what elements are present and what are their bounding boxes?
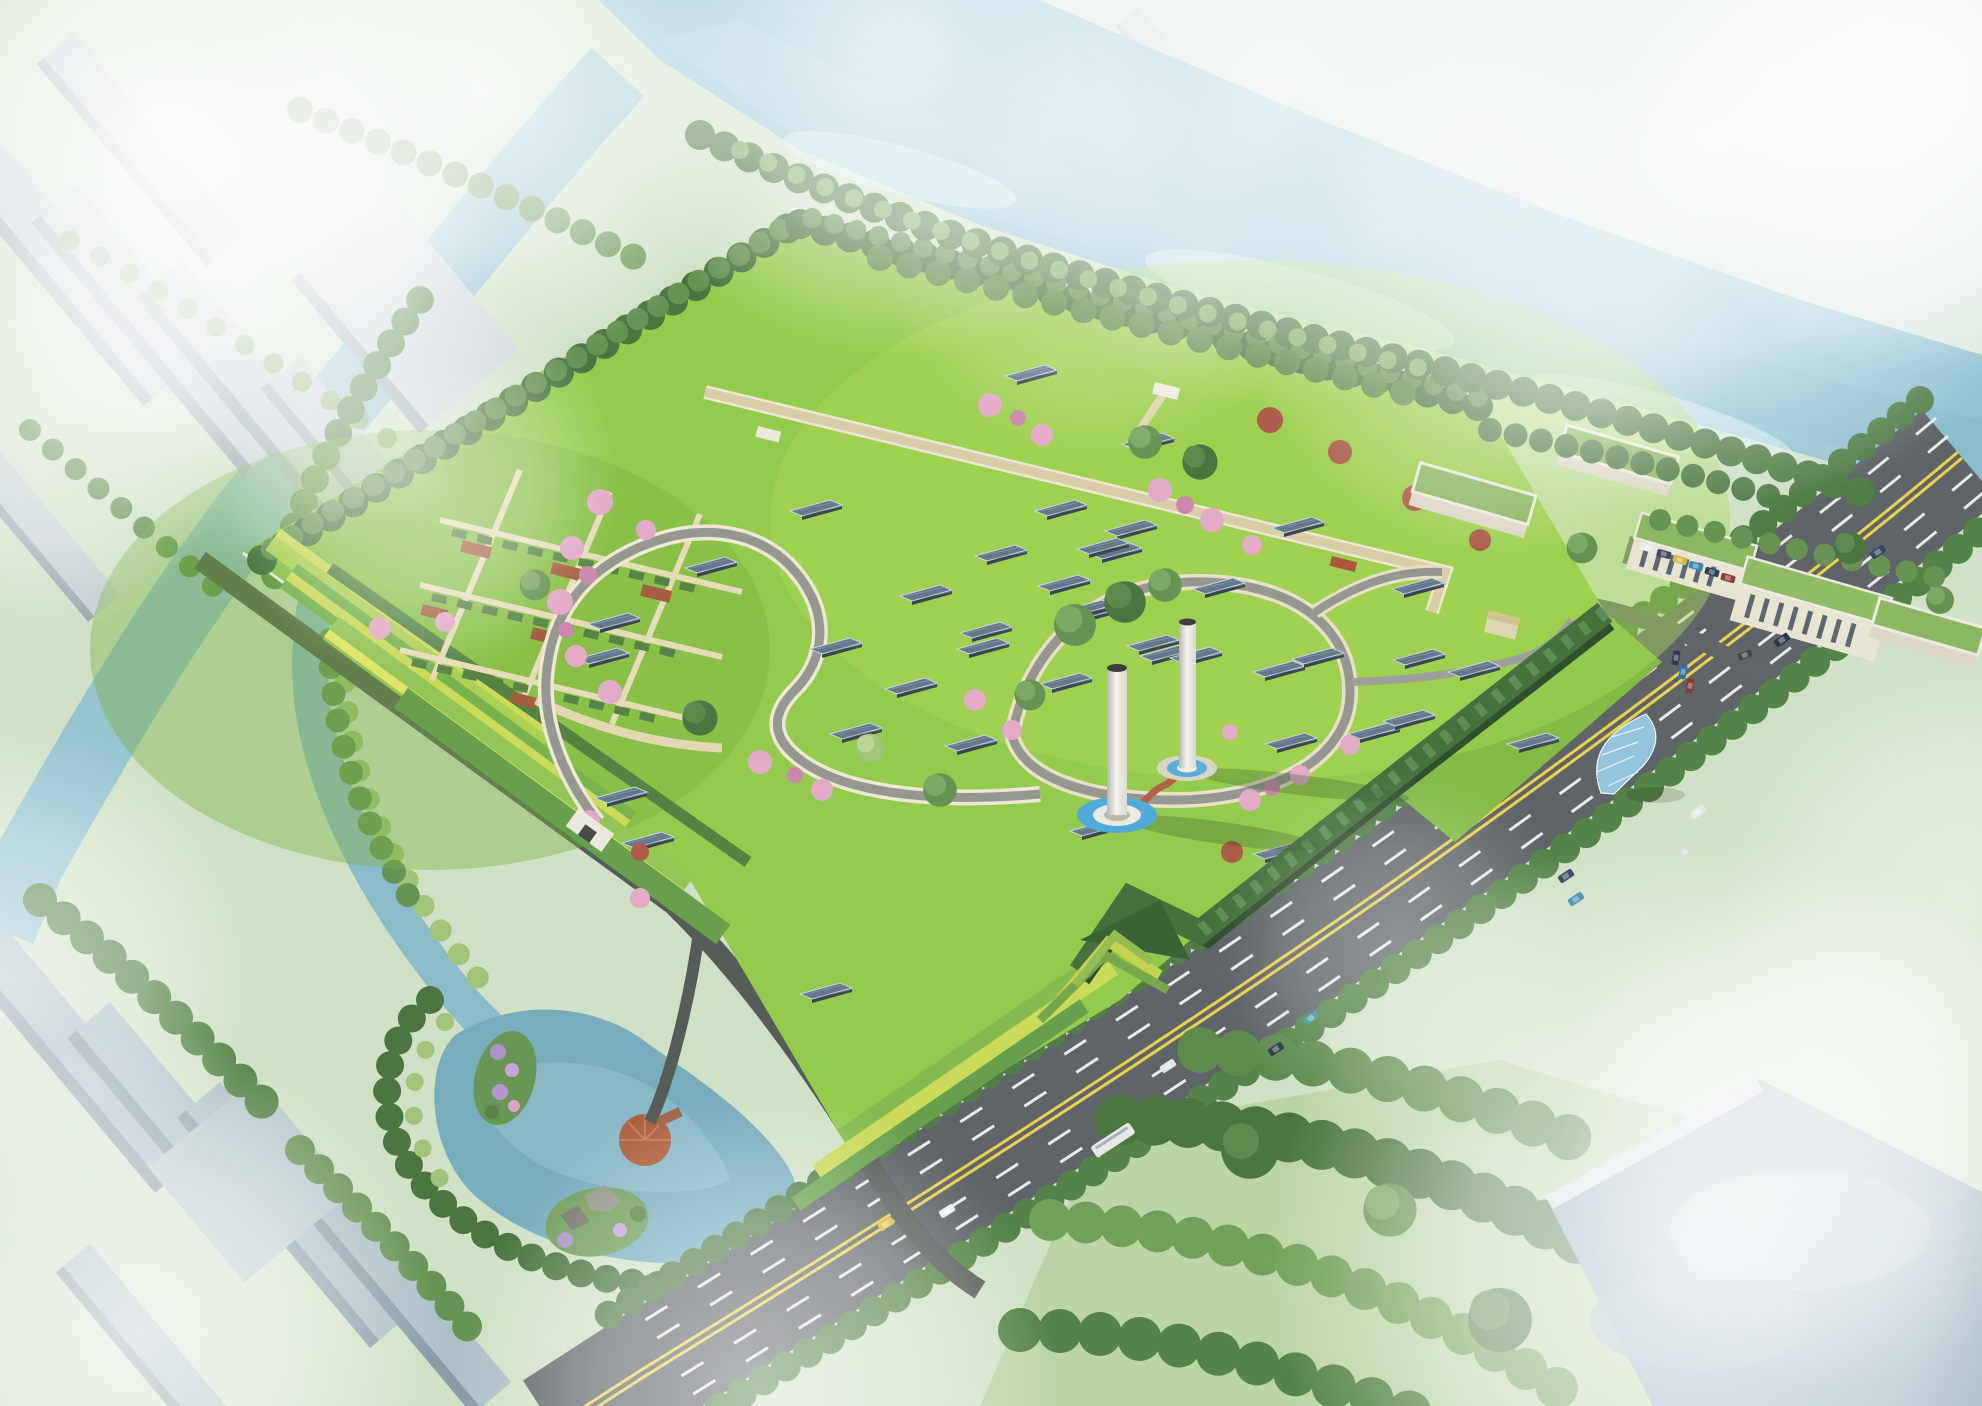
aerial-rendering (0, 0, 1982, 1406)
rendering-canvas (0, 0, 1982, 1406)
